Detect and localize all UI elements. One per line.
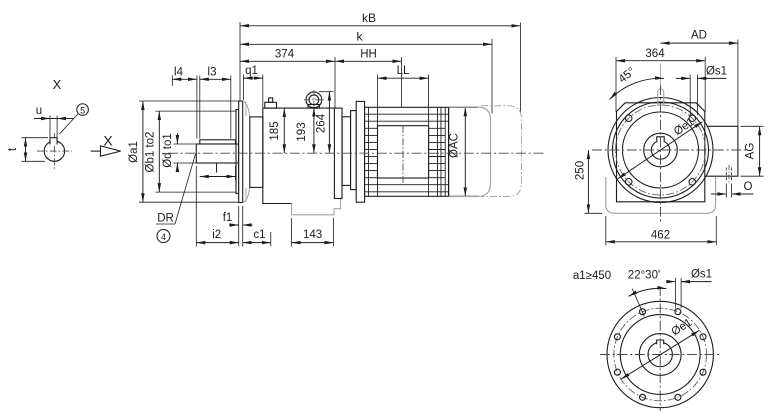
svg-text:LL: LL xyxy=(397,65,410,77)
svg-text:Øe1: Øe1 xyxy=(670,317,695,339)
svg-text:l: l xyxy=(215,164,218,176)
svg-text:Øs1: Øs1 xyxy=(691,269,712,281)
svg-text:264: 264 xyxy=(316,113,328,133)
svg-text:kB: kB xyxy=(362,11,376,25)
svg-text:193: 193 xyxy=(296,122,308,141)
svg-text:Ød to1: Ød to1 xyxy=(162,133,174,168)
svg-text:AD: AD xyxy=(691,30,707,42)
svg-text:22°30': 22°30' xyxy=(628,270,660,282)
svg-text:i2: i2 xyxy=(212,229,221,241)
svg-text:Øs1: Øs1 xyxy=(706,66,727,78)
svg-text:t: t xyxy=(7,147,19,151)
svg-text:ØAC: ØAC xyxy=(449,133,461,158)
svg-text:Øb1 to2: Øb1 to2 xyxy=(145,132,157,173)
svg-text:HH: HH xyxy=(360,49,377,61)
svg-text:5: 5 xyxy=(80,105,85,115)
svg-text:185: 185 xyxy=(269,121,281,140)
svg-text:a1≥450: a1≥450 xyxy=(573,270,611,282)
svg-text:X: X xyxy=(53,77,62,92)
svg-text:AG: AG xyxy=(745,143,757,160)
svg-text:364: 364 xyxy=(645,48,665,60)
svg-text:l4: l4 xyxy=(174,67,184,79)
svg-text:u: u xyxy=(36,105,42,117)
svg-text:Øa1: Øa1 xyxy=(128,141,140,163)
svg-text:143: 143 xyxy=(303,229,322,241)
svg-text:250: 250 xyxy=(575,161,587,180)
svg-text:O: O xyxy=(744,181,753,193)
svg-text:l3: l3 xyxy=(208,67,217,79)
svg-text:c1: c1 xyxy=(253,229,265,241)
svg-text:462: 462 xyxy=(651,229,670,241)
svg-text:4: 4 xyxy=(161,232,166,242)
svg-text:374: 374 xyxy=(275,49,295,61)
svg-text:f1: f1 xyxy=(223,212,233,224)
svg-text:q1: q1 xyxy=(245,65,258,77)
svg-text:k: k xyxy=(357,30,364,44)
svg-text:DR: DR xyxy=(157,213,174,225)
svg-text:X: X xyxy=(103,133,113,149)
